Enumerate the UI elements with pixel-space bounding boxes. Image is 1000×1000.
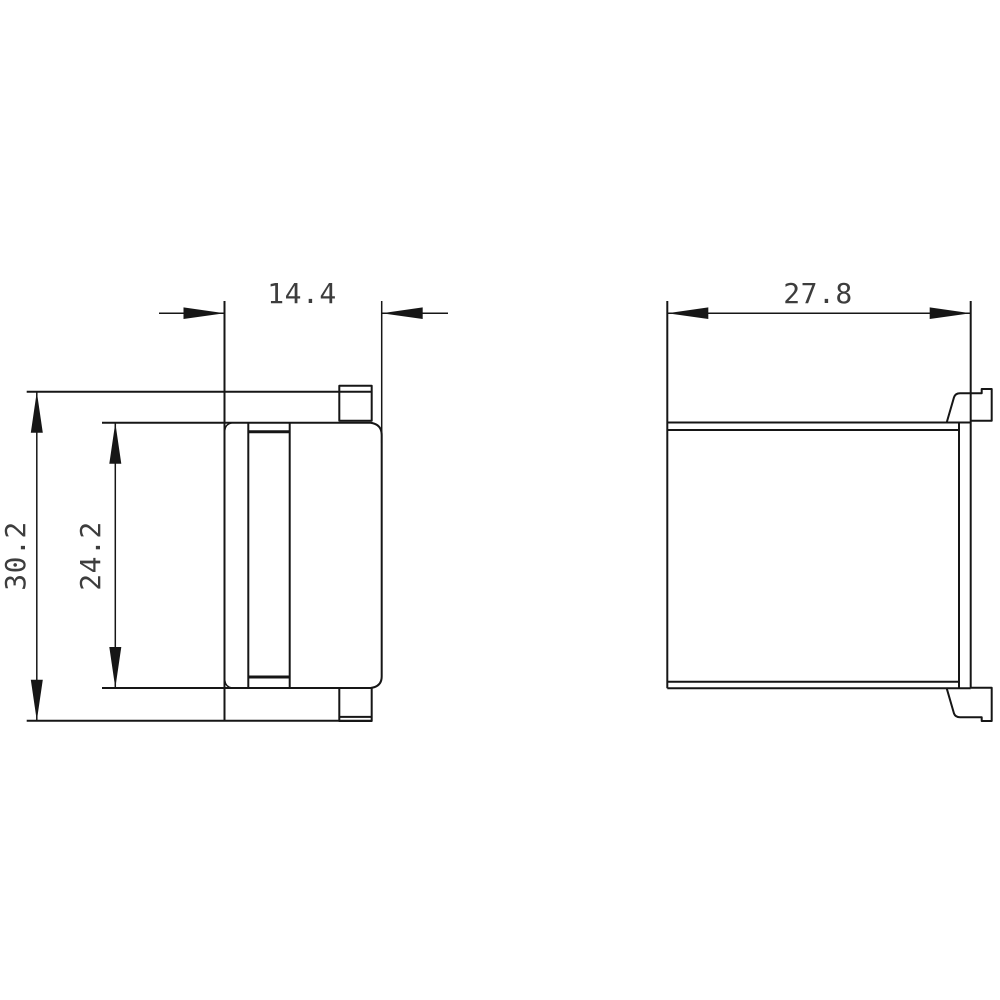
dim-front-inner-height-label: 24.2 (74, 521, 107, 590)
dim-arrow-right-icon (930, 307, 971, 319)
technical-drawing: 14.4 27.8 30.2 24.2 (0, 0, 1000, 1000)
dim-front-width-label: 14.4 (267, 277, 336, 310)
side-bottom-hook (947, 688, 992, 721)
dim-arrow-left-icon (667, 307, 708, 319)
dim-front-width: 14.4 (159, 277, 448, 443)
dim-front-overall-height: 30.2 (0, 392, 43, 721)
front-top-left-fillet (225, 423, 232, 431)
dim-front-overall-height-label: 30.2 (0, 521, 32, 590)
dim-arrow-left-icon (382, 307, 423, 319)
dim-front-inner-height: 24.2 (74, 423, 225, 688)
side-top-hook (947, 389, 992, 423)
front-view (27, 301, 382, 721)
dim-arrow-up-icon (31, 392, 43, 433)
dim-arrow-down-icon (31, 680, 43, 721)
dim-side-width-label: 27.8 (783, 277, 852, 310)
dim-side-width: 27.8 (667, 277, 970, 319)
drawing-page: 14.4 27.8 30.2 24.2 (0, 0, 1000, 1000)
side-view (667, 301, 991, 721)
front-body-outline (102, 423, 382, 688)
dim-arrow-up-icon (109, 423, 121, 464)
dim-arrow-right-icon (184, 307, 225, 319)
front-bottom-left-fillet (225, 680, 232, 688)
dim-arrow-down-icon (109, 647, 121, 688)
